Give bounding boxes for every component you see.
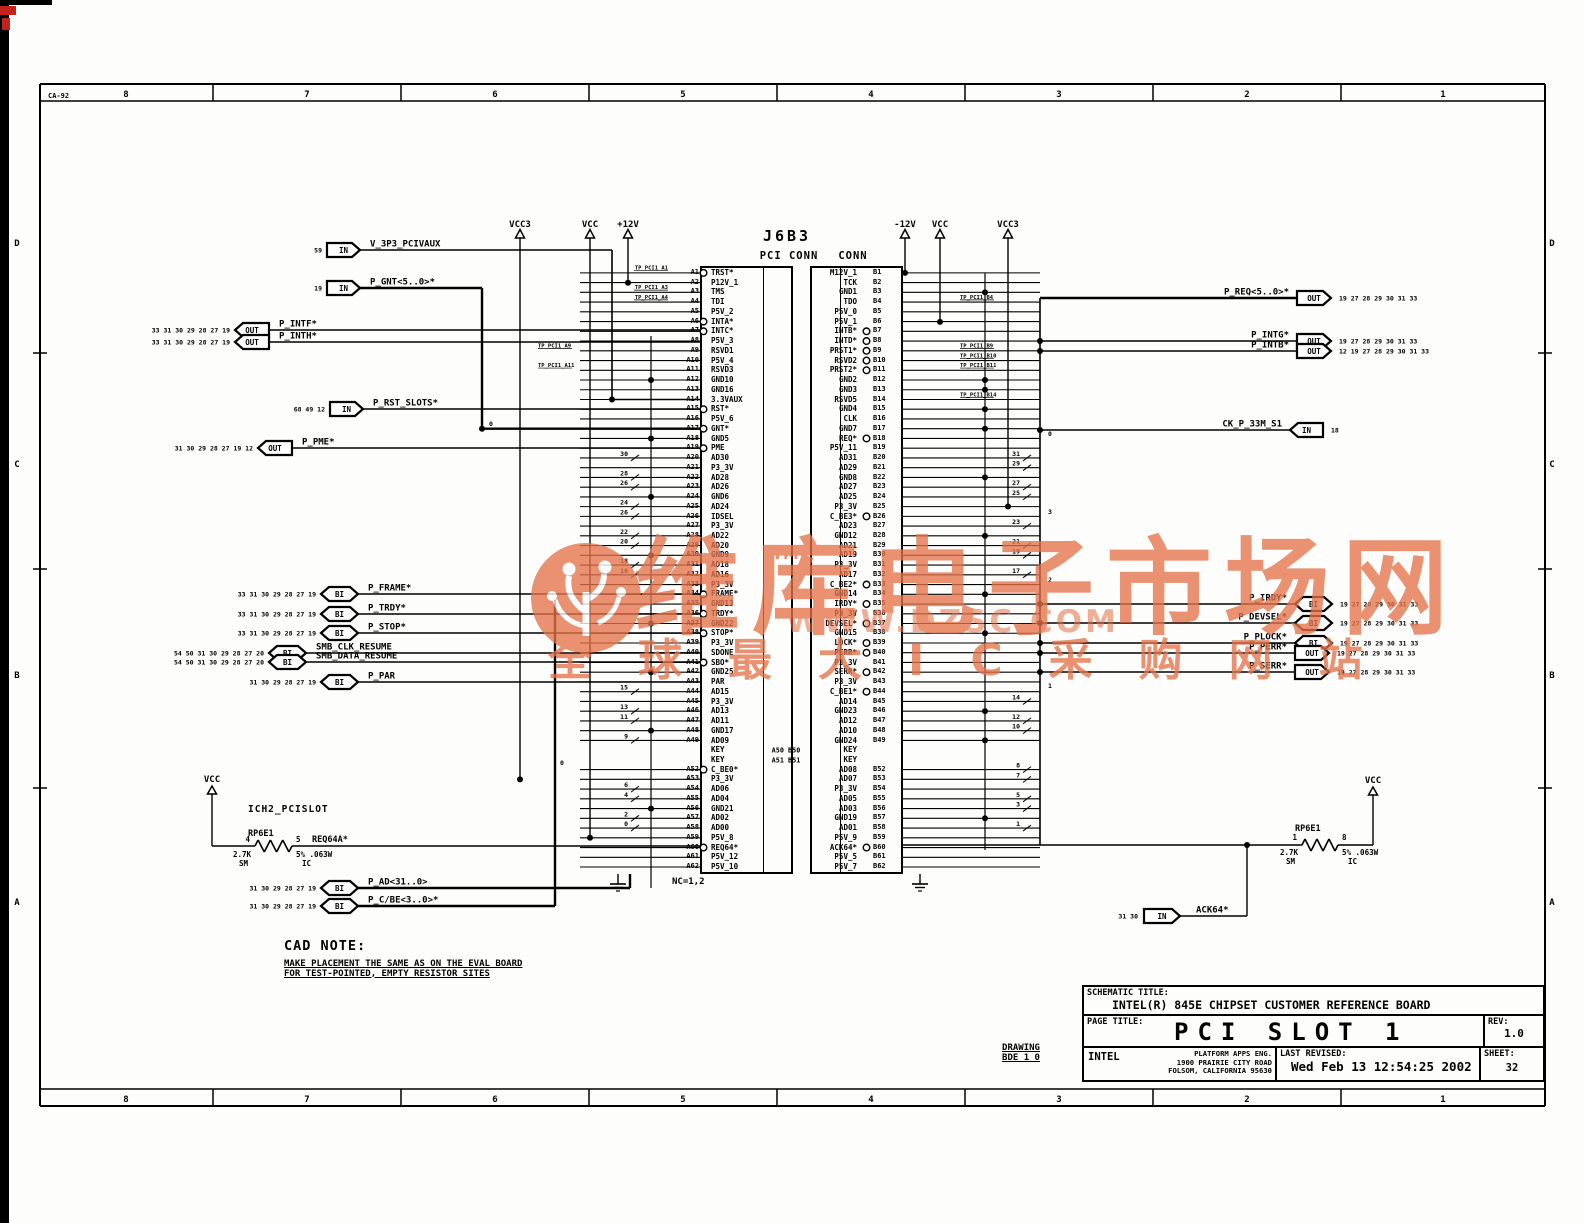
pin-signal-name: INTA* [711, 317, 734, 326]
pin-signal-name: P5V_9 [834, 833, 857, 842]
pin-signal-name: AD15 [711, 687, 729, 696]
pin-number: A42 [669, 667, 699, 675]
cad-note: CAD NOTE: MAKE PLACEMENT THE SAME AS ON … [284, 938, 522, 979]
pin-row-B30: AD19B30 [812, 550, 901, 560]
pin-signal-name: SERR* [834, 667, 857, 676]
bus-tap: 17 [1012, 567, 1020, 575]
pin-row-B40: PERR*B40 [812, 648, 901, 658]
company-name: INTEL [1088, 1051, 1120, 1063]
bus-tap-slash [1023, 806, 1031, 812]
port-flag [321, 675, 358, 689]
zone-label: 7 [304, 90, 309, 100]
junction-dot [982, 737, 988, 743]
testpoint-label: TP_PCI1_B10 [960, 353, 996, 359]
pin-row-B28: GND12B28 [812, 531, 901, 541]
pin-row-B56: AD03B56 [812, 804, 901, 814]
pin-signal-name: GND23 [834, 706, 857, 715]
bus-tap-slash [631, 796, 639, 802]
pin-number: B41 [873, 658, 886, 666]
port-flag [1295, 616, 1332, 630]
pin-row-A37: GND22A37 [702, 619, 791, 629]
pin-signal-name: C_BE1* [830, 687, 857, 696]
pin-number: B12 [873, 375, 886, 383]
bus-tap: 12 [1012, 713, 1020, 721]
bus-tap: 26 [620, 508, 628, 516]
schematic-title-row: SCHEMATIC TITLE: INTEL(R) 845E CHIPSET C… [1084, 987, 1543, 1016]
junction-dot [1037, 338, 1043, 344]
bus-tap-slash [1023, 718, 1031, 724]
bus-tap-slash [631, 504, 639, 510]
testpoint-label: TP_PCI1_B9 [960, 344, 993, 350]
pin-row-A51: KEY [702, 755, 791, 765]
bus-tap-slash [1023, 494, 1031, 500]
pin-number: A15 [669, 404, 699, 412]
pin-signal-name: P5V_6 [711, 414, 734, 423]
pin-number: B26 [873, 512, 886, 520]
pin-row-B52: AD08B52 [812, 765, 901, 775]
testpoint-label: TP_PCI1_B4 [960, 295, 994, 301]
pin-number: A3 [669, 287, 699, 295]
pin-row-A53: P3_3VA53 [702, 774, 791, 784]
pin-number: A58 [669, 823, 699, 831]
pin-row-A60: REQ64*A60 [702, 843, 791, 853]
resistor-class: IC [1348, 857, 1357, 866]
bus-tap-slash [1023, 698, 1031, 704]
zone-label: B [14, 671, 20, 681]
port-flag [1295, 636, 1332, 650]
pin-number: B10 [873, 356, 886, 364]
pin-signal-name: AD17 [839, 570, 857, 579]
pin-signal-name: C_BE0* [711, 765, 738, 774]
port-flag [1295, 665, 1329, 679]
pin-number: B2 [873, 278, 881, 286]
pin-number: A45 [669, 697, 699, 705]
pin-number: B13 [873, 385, 886, 393]
junction-dot [982, 591, 988, 597]
net-wire [270, 840, 276, 852]
pin-number: B30 [873, 550, 886, 558]
pin-signal-name: AD25 [839, 492, 857, 501]
pin-signal-name: P5V_3 [711, 336, 734, 345]
pin-row-B22: GND8B22 [812, 473, 901, 483]
zone-label: 7 [304, 1095, 309, 1105]
pin-number: A20 [669, 453, 699, 461]
pin-row-B23: AD27B23 [812, 482, 901, 492]
sheet-refs: 54 50 31 30 29 28 27 20 [174, 650, 264, 658]
pin-row-A23: AD26A23 [702, 482, 791, 492]
power-rail-label: VCC [932, 220, 948, 230]
drawing-number: BDE_1_0 [988, 1053, 1054, 1063]
schematic-title-label: SCHEMATIC TITLE: [1084, 987, 1543, 998]
bus-tap: 23 [1012, 518, 1020, 526]
bus-tap: 16 [620, 567, 628, 575]
pin-signal-name: P3_3V [711, 580, 734, 589]
pin-number: A9 [669, 346, 699, 354]
pin-row-A43: PARA43 [702, 677, 791, 687]
pin-number: B11 [873, 365, 886, 373]
page-title-cell: PAGE TITLE: PCI SLOT 1 [1084, 1016, 1485, 1046]
pin-signal-name: KEY [711, 745, 725, 754]
net-wire [289, 846, 292, 852]
pin-signal-name: KEY [843, 745, 857, 754]
pin-number: B25 [873, 502, 886, 510]
pin-signal-name: KEY [843, 755, 857, 764]
port-direction: BI [335, 590, 344, 599]
pin-signal-name: GND5 [711, 434, 729, 443]
pin-signal-name: AD21 [839, 541, 857, 550]
pin-number: A48 [669, 726, 699, 734]
sheet-refs: 33 31 30 29 28 27 19 [238, 591, 316, 599]
pin-row-A8: P5V_3A8 [702, 336, 791, 346]
pin-row-A46: AD13A46 [702, 706, 791, 716]
pin-row-A5: P5V_2A5 [702, 307, 791, 317]
net-name: P_TRDY* [368, 604, 406, 614]
pin-number: B56 [873, 804, 886, 812]
pin-row-A55: AD04A55 [702, 794, 791, 804]
pin-signal-name: AD19 [839, 550, 857, 559]
pin-number: A11 [669, 365, 699, 373]
pin-signal-name: P5V_11 [830, 443, 857, 452]
resistor-refdes: RP6E1 [248, 829, 274, 839]
pin-number: A57 [669, 813, 699, 821]
net-wire [1329, 839, 1335, 851]
port-flag [321, 881, 358, 895]
zone-label: 2 [1244, 1095, 1249, 1105]
pin-row-B55: AD05B55 [812, 794, 901, 804]
last-revised-cell: LAST REVISED: Wed Feb 13 12:54:25 2002 [1277, 1048, 1481, 1082]
pin-row-A33: P3_3VA33 [702, 580, 791, 590]
pin-row-B46: GND23B46 [812, 706, 901, 716]
junction-dot [1005, 504, 1011, 510]
pin-signal-name: PAR [711, 677, 725, 686]
page-title: PCI SLOT 1 [1174, 1018, 1409, 1046]
zone-label: 3 [1056, 90, 1061, 100]
junction-dot [517, 776, 523, 782]
pin-number: A27 [669, 521, 699, 529]
pin-row-B39: LOCK*B39 [812, 638, 901, 648]
pin-row-A41: SBO*A41 [702, 658, 791, 668]
pin-signal-name: TCK [843, 278, 857, 287]
pin-signal-name: GND3 [839, 385, 857, 394]
pin-row-B29: AD21B29 [812, 541, 901, 551]
pin-row-A14: 3.3VAUXA14 [702, 395, 791, 405]
pin-signal-name: AD04 [711, 794, 729, 803]
pin-number: B43 [873, 677, 886, 685]
pin-number: B9 [873, 346, 881, 354]
pin-number: A62 [669, 862, 699, 870]
zone-label: C [14, 460, 19, 470]
port-flag [1290, 423, 1323, 437]
zone-label: 5 [680, 90, 685, 100]
pin-number: B55 [873, 794, 886, 802]
bus-tap: 0 [624, 820, 628, 828]
pin-signal-name: IRDY* [834, 599, 857, 608]
pin-number: A44 [669, 687, 699, 695]
port-direction: BI [283, 649, 292, 658]
bus-tap-slash [1023, 484, 1031, 490]
pin-signal-name: AD22 [711, 531, 729, 540]
net-name: P_IRDY* [1249, 594, 1287, 604]
pin-row-B18: REQ*B18 [812, 434, 901, 444]
resistor-pin: 4 [245, 835, 250, 844]
bus-tap: 20 [620, 538, 628, 546]
pin-number: B24 [873, 492, 886, 500]
pin-row-A61: P5V_12A61 [702, 852, 791, 862]
bus-tap: 8 [1016, 762, 1020, 770]
pin-number: B45 [873, 697, 886, 705]
last-revised-label: LAST REVISED: [1277, 1048, 1479, 1059]
sheet-number: 32 [1481, 1059, 1543, 1074]
resistor-pkg: SM [1286, 857, 1296, 866]
resistor-class: IC [302, 859, 311, 868]
resistor-rating: 5% .063W [1342, 848, 1379, 857]
pin-row-B62: P5V_7B62 [812, 862, 901, 872]
pin-number: B46 [873, 706, 886, 714]
pin-row-B61: P5V_5B61 [812, 852, 901, 862]
net-name: CK_P_33M_S1 [1222, 420, 1282, 430]
bus-tap-slash [631, 815, 639, 821]
sheet-refs: 33 31 30 29 28 27 19 [238, 630, 316, 638]
port-direction: OUT [1307, 347, 1321, 356]
pin-number: B52 [873, 765, 886, 773]
pin-signal-name: RSVD1 [711, 346, 734, 355]
bus-tap-slash [1023, 572, 1031, 578]
pin-row-A28: AD22A28 [702, 531, 791, 541]
pin-row-A48: GND17A48 [702, 726, 791, 736]
pin-row-A27: P3_3VA27 [702, 521, 791, 531]
net-wire [1305, 839, 1311, 851]
power-rail-label: VCC [1365, 776, 1381, 786]
pin-row-B36: P3_3VB36 [812, 609, 901, 619]
testpoint-label: TP_PCI1_A3 [635, 285, 668, 291]
bus-tap-slash [631, 786, 639, 792]
pin-signal-name: P3_3V [834, 560, 857, 569]
net-name: P_REQ<5..0>* [1224, 288, 1289, 298]
port-flag [258, 441, 292, 455]
pin-row-B4: TDOB4 [812, 297, 901, 307]
junction-dot [1037, 640, 1043, 646]
net-name: V_3P3_PCIVAUX [370, 240, 441, 250]
bus-tap: 15 [620, 684, 628, 692]
port-direction: IN [342, 405, 352, 414]
testpoint-label: TP_PCI1_A11 [538, 363, 575, 369]
red-mark [0, 6, 16, 15]
pin-number: A6 [669, 317, 699, 325]
pin-signal-name: PERR* [834, 648, 857, 657]
pin-row-B9: PRST1*B9 [812, 346, 901, 356]
net-wire [1317, 839, 1323, 851]
power-rail-label: VCC [582, 220, 598, 230]
pin-number: A5 [669, 307, 699, 315]
company-cell: INTEL PLATFORM APPS ENG. 1900 PRAIRIE CI… [1084, 1048, 1277, 1082]
pin-number: A59 [669, 833, 699, 841]
net-name: P_INTH* [279, 332, 317, 342]
resistor-value: 2.7K [1280, 848, 1299, 857]
pin-signal-name: SBO* [711, 658, 729, 667]
pin-row-B48: AD10B48 [812, 726, 901, 736]
power-arrow [624, 230, 633, 239]
pin-signal-name: P5V_4 [711, 356, 734, 365]
pin-row-A18: GND5A18 [702, 434, 791, 444]
pin-row-A30: GND9A30 [702, 550, 791, 560]
pin-row-A44: AD15A44 [702, 687, 791, 697]
cad-note-title: CAD NOTE: [284, 938, 522, 954]
pin-signal-name: P5V_10 [711, 862, 738, 871]
pin-number: A10 [669, 356, 699, 364]
pin-number: B8 [873, 336, 881, 344]
pin-row-B3: GND1B3 [812, 287, 901, 297]
pin-signal-name: RSVD2 [834, 356, 857, 365]
junction-dot [648, 377, 654, 383]
pin-number: A32 [669, 570, 699, 578]
pin-row-A38: STOP*A38 [702, 628, 791, 638]
pin-row-A10: P5V_4A10 [702, 356, 791, 366]
connector-refdes: J6B3 [763, 227, 811, 245]
pin-number: B23 [873, 482, 886, 490]
bus-tap: 10 [1012, 723, 1020, 731]
port-flag [269, 655, 306, 669]
pin-row-B2: TCKB2 [812, 278, 901, 288]
pin-number: B14 [873, 395, 886, 403]
pin-number: A18 [669, 434, 699, 442]
pin-number: A56 [669, 804, 699, 812]
net-name: P_PERR* [1249, 643, 1287, 653]
pin-number: B47 [873, 716, 886, 724]
zone-label: 8 [123, 1095, 128, 1105]
bus-tap-slash [631, 825, 639, 831]
bus-tap: 28 [620, 469, 628, 477]
pin-row-B37: DEVSEL*B37 [812, 619, 901, 629]
pin-row-B35: IRDY*B35 [812, 599, 901, 609]
junction-dot [648, 494, 654, 500]
pin-number: A37 [669, 619, 699, 627]
pin-number: B44 [873, 687, 886, 695]
port-direction: OUT [1307, 294, 1321, 303]
pin-signal-name: LOCK* [834, 638, 857, 647]
net-name: REQ64A* [312, 835, 348, 845]
net-name: P_AD<31..0> [368, 878, 428, 888]
pin-row-B19: P5V_11B19 [812, 443, 901, 453]
net-wire [258, 840, 264, 852]
pin-number: A23 [669, 482, 699, 490]
pin-number: B3 [873, 287, 881, 295]
bus-bit-label: 2 [1048, 576, 1052, 584]
pin-number: A47 [669, 716, 699, 724]
bus-tap-slash [631, 737, 639, 743]
bus-tap: 13 [620, 703, 628, 711]
zone-label: D [1549, 239, 1555, 249]
pin-signal-name: AD20 [711, 541, 729, 550]
pin-signal-name: AD14 [839, 697, 857, 706]
bus-tap: 6 [624, 781, 628, 789]
pin-signal-name: AD28 [711, 473, 729, 482]
pin-row-B20: AD31B20 [812, 453, 901, 463]
junction-dot [982, 406, 988, 412]
bus-tap: 7 [1016, 771, 1020, 779]
pin-number: B40 [873, 648, 886, 656]
pin-number: A8 [669, 336, 699, 344]
sheet-refs: 19 27 28 29 30 31 33 [1340, 640, 1418, 648]
bus-tap: 5 [1016, 791, 1020, 799]
sheet-cell: SHEET: 32 [1481, 1048, 1543, 1082]
pin-row-B33: C_BE2*B33 [812, 580, 901, 590]
zone-label: B [1549, 671, 1555, 681]
pin-number: A28 [669, 531, 699, 539]
bus-tap-slash [1023, 552, 1031, 558]
sheet-refs: 31 30 29 28 27 19 [249, 903, 316, 911]
company-address2: FOLSOM, CALIFORNIA 95630 [1168, 1067, 1272, 1076]
pin-signal-name: INTB* [834, 326, 857, 335]
pin-signal-name: GND12 [834, 531, 857, 540]
pin-number: A30 [669, 550, 699, 558]
pin-row-A59: P5V_8A59 [702, 833, 791, 843]
pin-number: A36 [669, 609, 699, 617]
pin-signal-name: AD00 [711, 823, 729, 832]
pin-signal-name: AD13 [711, 706, 729, 715]
junction-dot [648, 669, 654, 675]
pin-signal-name: TMS [711, 287, 725, 296]
pin-row-A29: AD20A29 [702, 541, 791, 551]
junction-dot [982, 474, 988, 480]
port-direction: BI [1309, 639, 1318, 648]
pin-number: A61 [669, 852, 699, 860]
pin-signal-name: SDONE [711, 648, 734, 657]
pin-row-A7: INTC*A7 [702, 326, 791, 336]
power-arrow [1369, 787, 1378, 795]
port-direction: BI [335, 629, 344, 638]
net-name: P_INTF* [279, 320, 317, 330]
bus-bit-label: 1 [1048, 682, 1052, 690]
pin-number: A24 [669, 492, 699, 500]
sheet-refs: 59 [314, 247, 322, 255]
pin-number: A33 [669, 580, 699, 588]
testpoint-label: TP_PCI1_A9 [538, 344, 571, 350]
pin-signal-name: GND1 [839, 287, 857, 296]
port-flag [269, 646, 306, 660]
bus-tap: 30 [620, 450, 628, 458]
scan-edge-top [0, 0, 52, 5]
resistor-value: 2.7K [233, 850, 252, 859]
port-flag [1297, 344, 1331, 358]
pin-signal-name: P3_3V [834, 609, 857, 618]
bus-tap: 1 [1016, 820, 1020, 828]
port-flag [235, 323, 269, 337]
pin-row-A34: FRAME*A34 [702, 589, 791, 599]
pin-row-A31: AD18A31 [702, 560, 791, 570]
pin-row-B15: GND4B15 [812, 404, 901, 414]
pin-signal-name: P3_3V [834, 658, 857, 667]
pin-row-A40: SDONEA40 [702, 648, 791, 658]
pin-row-A32: AD16A32 [702, 570, 791, 580]
pin-number: A34 [669, 589, 699, 597]
pin-number: A54 [669, 784, 699, 792]
pin-row-A21: P3_3VA21 [702, 463, 791, 473]
pin-number: A41 [669, 658, 699, 666]
pin-row-A42: GND25A42 [702, 667, 791, 677]
connector-type: PCI CONN [760, 250, 819, 262]
pin-number: B58 [873, 823, 886, 831]
bus-tap-slash [1023, 776, 1031, 782]
pin-number: B27 [873, 521, 886, 529]
pin-signal-name: P5V_8 [711, 833, 734, 842]
port-flag [1297, 291, 1331, 305]
bus-bit-label: 0 [489, 420, 493, 428]
junction-dot [982, 533, 988, 539]
pin-signal-name: AD12 [839, 716, 857, 725]
pin-number: B59 [873, 833, 886, 841]
testpoint-label: TP_PCI1_B11 [960, 363, 997, 369]
pin-row-A54: AD06A54 [702, 784, 791, 794]
